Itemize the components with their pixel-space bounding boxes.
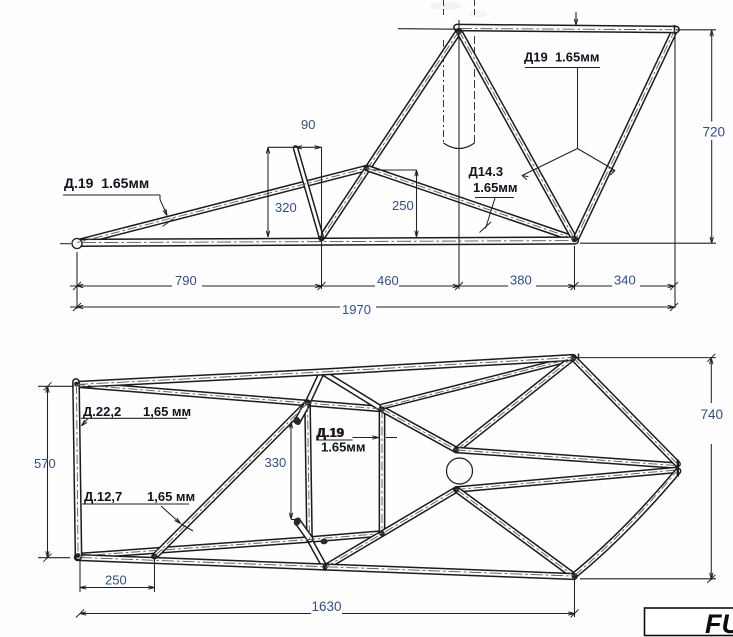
svg-text:Д19 1.65мм: Д19 1.65мм — [524, 50, 599, 65]
svg-text:340: 340 — [614, 273, 636, 288]
svg-text:790: 790 — [175, 273, 197, 288]
svg-text:Д.19: Д.19 — [317, 425, 344, 440]
svg-text:1.65мм: 1.65мм — [473, 180, 518, 195]
svg-text:460: 460 — [377, 273, 399, 288]
svg-text:1.65мм: 1.65мм — [321, 440, 366, 455]
svg-text:250: 250 — [105, 573, 127, 588]
svg-text:Д.19 1.65мм: Д.19 1.65мм — [64, 175, 149, 191]
svg-text:FU: FU — [705, 609, 733, 637]
svg-text:250: 250 — [392, 198, 414, 213]
svg-text:570: 570 — [34, 456, 56, 471]
svg-text:740: 740 — [701, 407, 724, 422]
svg-text:720: 720 — [703, 125, 726, 140]
svg-text:1630: 1630 — [312, 599, 342, 614]
svg-text:Д14.3: Д14.3 — [469, 164, 504, 179]
svg-text:1,65 мм: 1,65 мм — [143, 404, 191, 419]
svg-text:Д.12,7: Д.12,7 — [84, 489, 122, 504]
svg-text:90: 90 — [301, 117, 315, 132]
svg-text:Д.22,2: Д.22,2 — [83, 404, 121, 419]
svg-text:330: 330 — [265, 455, 287, 470]
svg-text:1970: 1970 — [342, 302, 371, 317]
svg-text:380: 380 — [510, 273, 532, 288]
svg-text:1,65 мм: 1,65 мм — [147, 489, 195, 504]
svg-text:320: 320 — [275, 200, 297, 215]
